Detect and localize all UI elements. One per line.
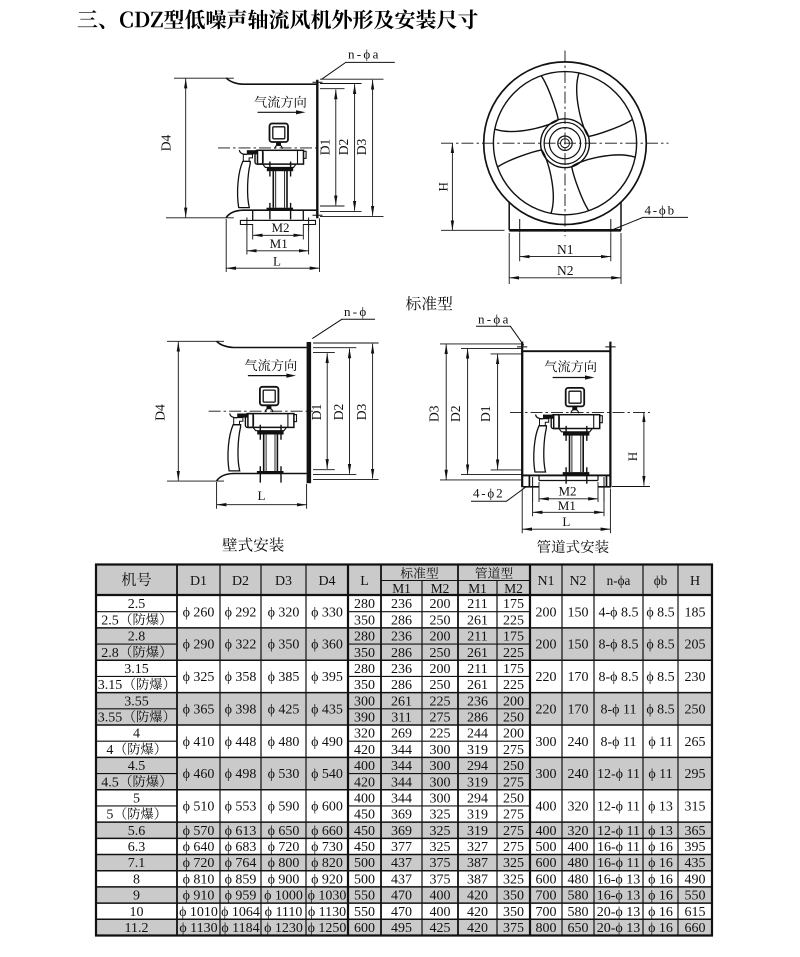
svg-text:275: 275 [503,743,524,758]
svg-text:D3: D3 [275,574,292,589]
svg-text:ϕ 660: ϕ 660 [311,824,343,839]
svg-text:ϕ 590: ϕ 590 [268,800,300,815]
svg-text:8: 8 [133,872,140,887]
svg-text:ϕ 13: ϕ 13 [648,800,673,815]
svg-text:236: 236 [391,597,412,612]
svg-text:6.3: 6.3 [128,840,146,855]
svg-text:319: 319 [467,824,488,839]
svg-text:D3: D3 [354,404,369,421]
svg-text:315: 315 [685,800,706,815]
svg-text:ϕ 498: ϕ 498 [225,767,257,782]
svg-text:200: 200 [430,630,451,645]
svg-text:L: L [258,488,266,503]
svg-text:275: 275 [503,775,524,790]
svg-text:16-ϕ 13: 16-ϕ 13 [597,889,641,904]
svg-text:M2: M2 [271,220,289,235]
svg-text:400: 400 [536,800,557,815]
svg-text:H: H [436,182,451,191]
svg-text:4.5: 4.5 [128,759,146,774]
svg-text:3.15: 3.15 [124,662,149,677]
svg-text:480: 480 [568,872,589,887]
svg-text:344: 344 [391,792,412,807]
svg-text:ϕ 1130: ϕ 1130 [308,905,346,920]
svg-text:211: 211 [467,662,487,677]
svg-text:500: 500 [354,856,375,871]
svg-text:2.5: 2.5 [128,597,146,612]
svg-text:D3: D3 [354,139,369,156]
svg-text:369: 369 [391,808,412,823]
svg-text:400: 400 [568,840,589,855]
svg-text:ϕ 330: ϕ 330 [311,605,343,620]
svg-text:236: 236 [391,630,412,645]
svg-text:3.55: 3.55 [124,694,149,709]
svg-text:225: 225 [430,694,451,709]
svg-text:200: 200 [536,638,557,653]
svg-text:700: 700 [536,889,557,904]
svg-text:ϕ 350: ϕ 350 [268,638,300,653]
svg-text:2.8: 2.8 [128,630,146,645]
svg-text:10: 10 [130,905,144,920]
svg-text:420: 420 [354,743,375,758]
svg-text:286: 286 [391,646,412,661]
svg-text:ϕ 800: ϕ 800 [268,856,300,871]
svg-text:M1: M1 [468,581,487,596]
svg-text:ϕ 448: ϕ 448 [225,735,257,750]
svg-text:170: 170 [568,670,589,685]
svg-text:200: 200 [503,694,524,709]
svg-text:ϕ 1064: ϕ 1064 [221,905,260,920]
svg-text:ϕ 8.5: ϕ 8.5 [646,638,674,653]
svg-text:325: 325 [430,840,451,855]
svg-text:n-ϕa: n-ϕa [478,311,511,326]
svg-text:225: 225 [503,646,524,661]
svg-text:600: 600 [354,921,375,936]
svg-text:ϕ 16: ϕ 16 [648,840,673,855]
svg-text:D2: D2 [232,574,249,589]
svg-text:M2: M2 [431,581,450,596]
svg-text:ϕ 820: ϕ 820 [311,856,343,871]
svg-text:D4: D4 [318,574,335,589]
svg-text:ϕ 600: ϕ 600 [311,800,343,815]
svg-text:9: 9 [133,889,140,904]
svg-text:ϕ 385: ϕ 385 [268,670,300,685]
svg-text:250: 250 [685,702,706,717]
svg-text:20-ϕ 13: 20-ϕ 13 [597,905,641,920]
svg-text:320: 320 [568,824,589,839]
svg-text:250: 250 [503,759,524,774]
svg-text:325: 325 [430,808,451,823]
svg-text:275: 275 [503,840,524,855]
svg-text:387: 387 [467,856,488,871]
svg-text:ϕ 720: ϕ 720 [183,856,215,871]
svg-text:375: 375 [503,921,524,936]
svg-text:261: 261 [467,646,488,661]
svg-text:450: 450 [354,808,375,823]
svg-text:ϕ 435: ϕ 435 [311,702,343,717]
svg-text:175: 175 [503,662,524,677]
svg-text:320: 320 [354,727,375,742]
svg-text:225: 225 [503,613,524,628]
svg-text:250: 250 [430,646,451,661]
svg-text:ϕ 490: ϕ 490 [311,735,343,750]
svg-text:ϕ 11: ϕ 11 [648,767,672,782]
svg-text:550: 550 [354,905,375,920]
svg-text:280: 280 [354,630,375,645]
svg-text:400: 400 [354,792,375,807]
svg-text:L: L [273,254,281,269]
svg-text:450: 450 [354,840,375,855]
svg-text:261: 261 [467,613,488,628]
svg-text:600: 600 [536,872,557,887]
svg-text:400: 400 [430,905,451,920]
svg-text:4: 4 [133,727,140,742]
svg-text:L: L [360,574,369,589]
svg-text:286: 286 [467,711,488,726]
svg-text:ϕ 16: ϕ 16 [648,921,673,936]
svg-text:550: 550 [685,889,706,904]
svg-text:4-ϕb: 4-ϕb [645,203,676,218]
svg-text:3.15: 3.15 [98,678,123,693]
svg-text:286: 286 [391,678,412,693]
svg-text:650: 650 [568,921,589,936]
svg-text:ϕ 570: ϕ 570 [183,824,215,839]
svg-text:236: 236 [391,662,412,677]
svg-text:ϕ 480: ϕ 480 [268,735,300,750]
svg-text:280: 280 [354,662,375,677]
svg-text:11.2: 11.2 [125,921,149,936]
svg-text:300: 300 [536,735,557,750]
svg-text:ϕ 1000: ϕ 1000 [264,889,303,904]
svg-text:319: 319 [467,775,488,790]
svg-text:ϕ 8.5: ϕ 8.5 [646,702,674,717]
svg-text:495: 495 [391,921,412,936]
svg-text:250: 250 [503,792,524,807]
svg-text:ϕ 1250: ϕ 1250 [308,921,347,936]
svg-text:M1: M1 [270,236,288,251]
svg-text:D1: D1 [317,139,332,156]
svg-text:300: 300 [430,792,451,807]
svg-text:150: 150 [568,605,589,620]
svg-text:M1: M1 [558,498,576,513]
svg-text:295: 295 [685,767,706,782]
svg-text:ϕ 325: ϕ 325 [183,670,215,685]
svg-text:4-ϕ 8.5: 4-ϕ 8.5 [598,605,638,620]
svg-text:660: 660 [685,921,706,936]
svg-text:D4: D4 [159,135,174,152]
svg-text:420: 420 [467,889,488,904]
svg-text:ϕ 16: ϕ 16 [648,889,673,904]
svg-text:D1: D1 [309,404,324,421]
svg-text:350: 350 [354,678,375,693]
svg-text:ϕ 8.5: ϕ 8.5 [646,670,674,685]
svg-text:437: 437 [391,872,412,887]
svg-text:390: 390 [354,711,375,726]
svg-text:8-ϕ 11: 8-ϕ 11 [600,702,636,717]
svg-text:M1: M1 [392,581,411,596]
svg-text:200: 200 [536,605,557,620]
svg-text:470: 470 [391,889,412,904]
svg-text:ϕ 1030: ϕ 1030 [308,889,347,904]
svg-text:ϕ 640: ϕ 640 [183,840,215,855]
svg-text:220: 220 [536,670,557,685]
svg-text:ϕ 1130: ϕ 1130 [179,921,217,936]
svg-text:275: 275 [430,711,451,726]
svg-text:ϕ 395: ϕ 395 [311,670,343,685]
svg-text:319: 319 [467,743,488,758]
svg-text:H: H [625,452,640,461]
svg-text:12-ϕ 11: 12-ϕ 11 [597,800,640,815]
svg-text:240: 240 [568,735,589,750]
svg-text:ϕ 8.5: ϕ 8.5 [646,605,674,620]
svg-text:205: 205 [685,638,706,653]
svg-text:ϕ 720: ϕ 720 [268,840,300,855]
svg-text:377: 377 [391,840,412,855]
svg-text:175: 175 [503,630,524,645]
svg-text:319: 319 [467,808,488,823]
svg-text:240: 240 [568,767,589,782]
svg-text:ϕ 650: ϕ 650 [268,824,300,839]
svg-text:580: 580 [568,889,589,904]
svg-text:ϕ 398: ϕ 398 [225,702,257,717]
svg-text:ϕ 425: ϕ 425 [268,702,300,717]
svg-text:375: 375 [430,856,451,871]
svg-text:ϕ 553: ϕ 553 [225,800,257,815]
svg-text:ϕ 920: ϕ 920 [311,872,343,887]
svg-text:ϕb: ϕb [654,573,668,588]
svg-text:N1: N1 [557,242,574,257]
svg-text:ϕ 320: ϕ 320 [268,605,300,620]
svg-text:344: 344 [391,759,412,774]
svg-text:ϕ 530: ϕ 530 [268,767,300,782]
svg-text:12-ϕ 11: 12-ϕ 11 [597,767,640,782]
svg-text:170: 170 [568,702,589,717]
svg-text:L: L [562,514,570,529]
svg-text:M2: M2 [558,484,576,499]
svg-text:M2: M2 [504,581,523,596]
svg-text:230: 230 [685,670,706,685]
svg-text:220: 220 [536,702,557,717]
svg-text:480: 480 [568,856,589,871]
svg-text:211: 211 [467,630,487,645]
svg-text:261: 261 [391,694,412,709]
svg-text:350: 350 [354,646,375,661]
svg-text:344: 344 [391,775,412,790]
svg-text:4.5: 4.5 [101,775,119,790]
svg-text:244: 244 [467,727,488,742]
svg-text:7.1: 7.1 [128,856,146,871]
svg-text:ϕ 11: ϕ 11 [648,735,672,750]
svg-text:ϕ 1230: ϕ 1230 [264,921,303,936]
svg-text:ϕ 959: ϕ 959 [225,889,257,904]
svg-text:420: 420 [354,775,375,790]
svg-text:400: 400 [430,889,451,904]
svg-text:ϕ 16: ϕ 16 [648,905,673,920]
svg-text:ϕ 730: ϕ 730 [311,840,343,855]
svg-text:800: 800 [536,921,557,936]
svg-text:ϕ 410: ϕ 410 [183,735,215,750]
svg-text:350: 350 [503,905,524,920]
svg-text:8-ϕ 8.5: 8-ϕ 8.5 [598,638,638,653]
svg-text:ϕ 540: ϕ 540 [311,767,343,782]
svg-text:435: 435 [685,856,706,871]
svg-text:ϕ 900: ϕ 900 [268,872,300,887]
svg-text:D4: D4 [153,404,168,421]
svg-text:4-ϕ2: 4-ϕ2 [473,485,504,500]
svg-text:D2: D2 [331,404,346,421]
svg-text:280: 280 [354,597,375,612]
svg-text:400: 400 [536,824,557,839]
svg-text:700: 700 [536,905,557,920]
svg-text:ϕ 260: ϕ 260 [183,605,215,620]
svg-text:580: 580 [568,905,589,920]
svg-text:325: 325 [503,856,524,871]
svg-text:615: 615 [685,905,706,920]
svg-text:294: 294 [467,759,488,774]
svg-text:150: 150 [568,638,589,653]
svg-text:311: 311 [391,711,411,726]
svg-text:437: 437 [391,856,412,871]
svg-text:300: 300 [430,775,451,790]
svg-text:12-ϕ 11: 12-ϕ 11 [597,824,640,839]
svg-text:300: 300 [354,694,375,709]
svg-text:ϕ 859: ϕ 859 [225,872,257,887]
svg-text:200: 200 [503,727,524,742]
svg-text:N2: N2 [569,574,586,589]
svg-text:550: 550 [354,889,375,904]
svg-text:425: 425 [430,921,451,936]
svg-text:2.5: 2.5 [101,613,119,628]
svg-text:211: 211 [467,597,487,612]
svg-text:269: 269 [391,727,412,742]
svg-text:265: 265 [685,735,706,750]
svg-text:ϕ 13: ϕ 13 [648,824,673,839]
svg-text:420: 420 [467,905,488,920]
svg-text:ϕ 683: ϕ 683 [225,840,257,855]
svg-text:5: 5 [133,792,140,807]
svg-text:D2: D2 [448,406,463,423]
svg-text:250: 250 [503,711,524,726]
svg-text:n-ϕ: n-ϕ [344,304,369,319]
svg-text:250: 250 [430,613,451,628]
svg-text:350: 350 [503,889,524,904]
svg-text:ϕ 1110: ϕ 1110 [265,905,303,920]
svg-text:ϕ 810: ϕ 810 [183,872,215,887]
svg-text:185: 185 [685,605,706,620]
svg-text:ϕ 358: ϕ 358 [225,670,257,685]
svg-text:ϕ 764: ϕ 764 [225,856,257,871]
svg-text:5: 5 [106,808,113,823]
svg-text:250: 250 [430,678,451,693]
svg-text:275: 275 [503,824,524,839]
svg-text:294: 294 [467,792,488,807]
svg-text:ϕ 910: ϕ 910 [183,889,215,904]
svg-text:320: 320 [568,800,589,815]
svg-text:ϕ 613: ϕ 613 [225,824,257,839]
svg-text:286: 286 [391,613,412,628]
svg-text:369: 369 [391,824,412,839]
svg-text:344: 344 [391,743,412,758]
svg-text:236: 236 [467,694,488,709]
svg-text:D1: D1 [478,406,493,423]
svg-text:ϕ 16: ϕ 16 [648,856,673,871]
svg-text:ϕ 1010: ϕ 1010 [179,905,218,920]
svg-text:ϕ 510: ϕ 510 [183,800,215,815]
svg-text:225: 225 [430,727,451,742]
svg-text:200: 200 [430,597,451,612]
svg-text:ϕ 460: ϕ 460 [183,767,215,782]
svg-text:327: 327 [467,840,488,855]
svg-text:400: 400 [354,759,375,774]
svg-text:5.6: 5.6 [128,824,146,839]
svg-text:600: 600 [536,856,557,871]
svg-text:470: 470 [391,905,412,920]
svg-text:175: 175 [503,597,524,612]
svg-text:2.8: 2.8 [101,646,119,661]
svg-text:ϕ 16: ϕ 16 [648,872,673,887]
svg-text:200: 200 [430,662,451,677]
svg-text:325: 325 [503,872,524,887]
svg-text:ϕ 322: ϕ 322 [225,638,257,653]
svg-text:450: 450 [354,824,375,839]
svg-text:350: 350 [354,613,375,628]
svg-text:8-ϕ 8.5: 8-ϕ 8.5 [598,670,638,685]
svg-text:275: 275 [503,808,524,823]
svg-text:490: 490 [685,872,706,887]
svg-text:300: 300 [430,743,451,758]
svg-text:225: 225 [503,678,524,693]
svg-text:375: 375 [430,872,451,887]
svg-text:20-ϕ 13: 20-ϕ 13 [597,921,641,936]
svg-text:325: 325 [430,824,451,839]
svg-text:500: 500 [536,840,557,855]
svg-text:ϕ 365: ϕ 365 [183,702,215,717]
svg-text:365: 365 [685,824,706,839]
svg-text:n-ϕa: n-ϕa [607,573,631,588]
svg-text:D1: D1 [190,574,207,589]
svg-text:4: 4 [106,743,113,758]
svg-text:3.55: 3.55 [98,711,123,726]
svg-text:395: 395 [685,840,706,855]
svg-text:N1: N1 [537,574,554,589]
svg-text:16-ϕ 11: 16-ϕ 11 [597,856,640,871]
svg-text:500: 500 [354,872,375,887]
svg-text:ϕ 292: ϕ 292 [225,605,257,620]
svg-text:D3: D3 [426,405,441,422]
svg-text:H: H [690,574,700,589]
svg-text:300: 300 [536,767,557,782]
svg-text:387: 387 [467,872,488,887]
svg-text:D2: D2 [336,139,351,156]
svg-text:420: 420 [467,921,488,936]
svg-text:300: 300 [430,759,451,774]
svg-text:261: 261 [467,678,488,693]
svg-text:N2: N2 [557,263,574,278]
svg-text:ϕ 1184: ϕ 1184 [221,921,259,936]
svg-text:ϕ 360: ϕ 360 [311,638,343,653]
svg-text:8-ϕ 11: 8-ϕ 11 [600,735,636,750]
svg-text:16-ϕ 11: 16-ϕ 11 [597,840,640,855]
svg-text:n-ϕa: n-ϕa [348,47,381,62]
svg-text:16-ϕ 13: 16-ϕ 13 [597,872,641,887]
svg-text:ϕ 290: ϕ 290 [183,638,215,653]
